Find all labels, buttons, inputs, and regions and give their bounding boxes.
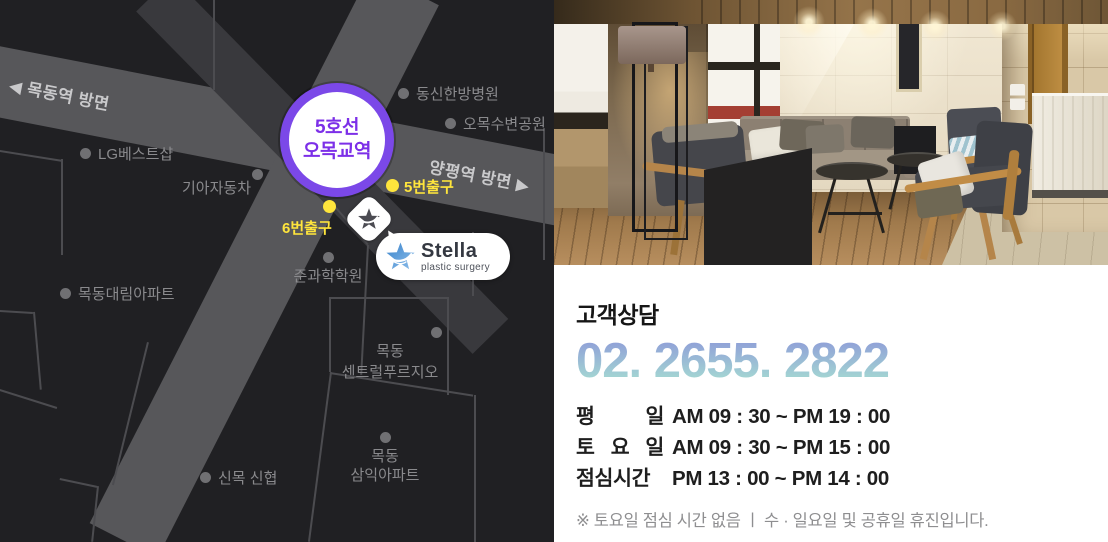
hours-day-label: 토 요 일	[576, 432, 664, 463]
floor-lamp-knob	[648, 64, 654, 72]
landmark-shinmok-shinhyup: 신목 신협	[200, 467, 277, 488]
street-line	[330, 297, 447, 299]
landmark-label: 목동대림아파트	[78, 283, 175, 304]
contact-info-panel: 고객상담 02. 2655. 2822 평 일AM 09 : 30 ~ PM 1…	[554, 265, 1108, 542]
clinic-tagline: plastic surgery	[421, 263, 490, 273]
hours-day-label: 점심시간	[576, 463, 664, 494]
landmark-dot	[252, 169, 263, 180]
reception-counter	[1032, 93, 1108, 192]
direction-label-mokdong: ◀ 목동역 방면	[7, 72, 111, 115]
counter-base-shadow	[1032, 190, 1108, 198]
landmark-lg-bestshop: LG베스트샵	[80, 143, 173, 164]
hours-row-weekday: 평 일AM 09 : 30 ~ PM 19 : 00	[576, 401, 1108, 432]
street-line	[0, 389, 57, 408]
street-line	[0, 150, 62, 161]
dark-pillow	[850, 116, 895, 149]
contact-heading: 고객상담	[576, 296, 1108, 330]
landmark-label: 기아자동차	[182, 177, 251, 198]
ceiling-downlights	[754, 0, 1108, 50]
landmark-label: LG베스트샵	[98, 143, 173, 164]
landmark-dot	[80, 148, 91, 159]
landmark-dot	[445, 118, 456, 129]
street-line	[213, 0, 215, 90]
hours-time: PM 13 : 00 ~ PM 14 : 00	[672, 467, 889, 490]
landmark-dongshin-hospital: 동신한방병원	[398, 83, 499, 104]
street-line	[447, 297, 449, 395]
street-line	[329, 297, 331, 372]
coffee-table-bar	[828, 212, 882, 215]
landmark-label: 목동 삼익아파트	[350, 447, 419, 485]
coffee-table-round	[816, 162, 888, 180]
street-line	[308, 372, 332, 542]
landmark-dot	[431, 327, 442, 338]
street-line	[60, 478, 97, 487]
landmark-daelim-apt: 목동대림아파트	[60, 283, 175, 304]
left-window	[554, 0, 608, 208]
subway-station-badge: 5호선 오목교역	[280, 83, 394, 197]
street-line	[61, 159, 63, 255]
landmark-label: 준과학학원	[293, 267, 362, 286]
clinic-bubble-text: Stella plastic surgery	[421, 241, 490, 273]
station-name: 오목교역	[303, 140, 371, 164]
clinic-interior-photo	[554, 0, 1108, 265]
light-switches	[1010, 84, 1025, 110]
phone-number: 02. 2655. 2822	[576, 337, 889, 386]
landmark-dot	[380, 432, 391, 443]
business-hours: 평 일AM 09 : 30 ~ PM 19 : 00 토 요 일AM 09 : …	[576, 401, 1108, 494]
street-line	[33, 312, 41, 390]
landmark-omok-park: 오목수변공원	[445, 113, 546, 134]
landmark-label: 오목수변공원	[463, 113, 546, 134]
landmark-central-purgio: 목동 센트럴푸르지오	[335, 322, 445, 421]
clinic-brand-name: Stella	[421, 241, 490, 261]
floor-lamp-shade	[618, 26, 686, 64]
landmark-dot	[398, 88, 409, 99]
hours-row-lunch: 점심시간PM 13 : 00 ~ PM 14 : 00	[576, 463, 1108, 494]
exit6-dot	[323, 200, 336, 213]
landmark-dot	[323, 252, 334, 263]
landmark-kia-motors: 기아자동차	[180, 169, 270, 199]
hours-row-saturday: 토 요 일AM 09 : 30 ~ PM 15 : 00	[576, 432, 1108, 463]
location-map: ◀ 목동역 방면 양평역 방면 ▶ LG베스트샵 기아자동차	[0, 0, 554, 542]
landmark-label: 동신한방병원	[416, 83, 499, 104]
hours-day-label: 평 일	[576, 401, 664, 432]
street-line	[543, 128, 545, 260]
clinic-location-banner: ◀ 목동역 방면 양평역 방면 ▶ LG베스트샵 기아자동차	[0, 0, 1108, 542]
exit6-label: 6번출구	[282, 217, 332, 238]
stella-logo-icon	[385, 241, 416, 272]
hours-note: ※ 토요일 점심 시간 없음 ㅣ 수 · 일요일 및 공휴일 휴진입니다.	[576, 507, 1108, 531]
street-line	[0, 310, 33, 314]
landmark-label: 신목 신협	[218, 467, 277, 488]
landmark-samik-apt: 목동 삼익아파트	[337, 432, 433, 485]
hours-time: AM 09 : 30 ~ PM 15 : 00	[672, 436, 890, 459]
station-line: 5호선	[315, 116, 359, 140]
landmark-jun-academy: 준과학학원	[283, 252, 373, 286]
clinic-label-bubble: Stella plastic surgery	[376, 233, 510, 280]
landmark-label: 목동 센트럴푸르지오	[335, 341, 445, 383]
landmark-dot	[60, 288, 71, 299]
hours-time: AM 09 : 30 ~ PM 19 : 00	[672, 405, 890, 428]
street-line	[474, 395, 476, 542]
exit5-label: 5번출구	[404, 176, 454, 197]
exit5-dot	[386, 179, 399, 192]
landmark-dot	[200, 472, 211, 483]
